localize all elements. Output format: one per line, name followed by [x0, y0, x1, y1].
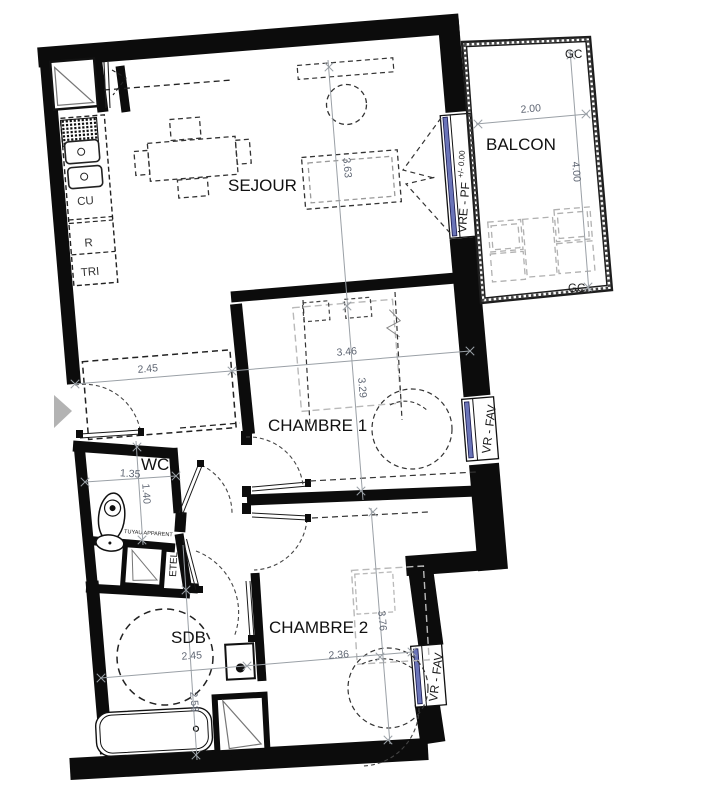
svg-text:2.36: 2.36 [328, 648, 349, 661]
svg-text:ETEL: ETEL [168, 551, 180, 577]
svg-text:WC: WC [141, 455, 169, 474]
svg-text:3.63: 3.63 [340, 157, 354, 179]
svg-text:1.35: 1.35 [120, 467, 141, 480]
svg-text:3.76: 3.76 [375, 610, 389, 632]
svg-text:2.00: 2.00 [520, 102, 541, 116]
svg-text:GC: GC [568, 283, 585, 295]
svg-text:3.29: 3.29 [355, 377, 369, 399]
svg-text:CHAMBRE 2: CHAMBRE 2 [269, 618, 368, 637]
svg-text:TRI: TRI [80, 266, 99, 279]
svg-text:BALCON: BALCON [486, 135, 556, 154]
svg-text:CHAMBRE 1: CHAMBRE 1 [268, 416, 367, 435]
svg-text:CU: CU [77, 195, 95, 208]
svg-text:SDB: SDB [171, 628, 206, 647]
svg-text:2.45: 2.45 [181, 649, 202, 662]
svg-text:2.45: 2.45 [137, 362, 158, 376]
svg-text:R: R [84, 237, 93, 250]
svg-text:1.40: 1.40 [139, 483, 152, 504]
svg-text:GC: GC [565, 49, 582, 61]
svg-text:3.46: 3.46 [336, 345, 357, 359]
svg-text:4.00: 4.00 [569, 161, 583, 183]
svg-text:SEJOUR: SEJOUR [228, 176, 297, 195]
svg-text:2.58: 2.58 [187, 691, 201, 713]
